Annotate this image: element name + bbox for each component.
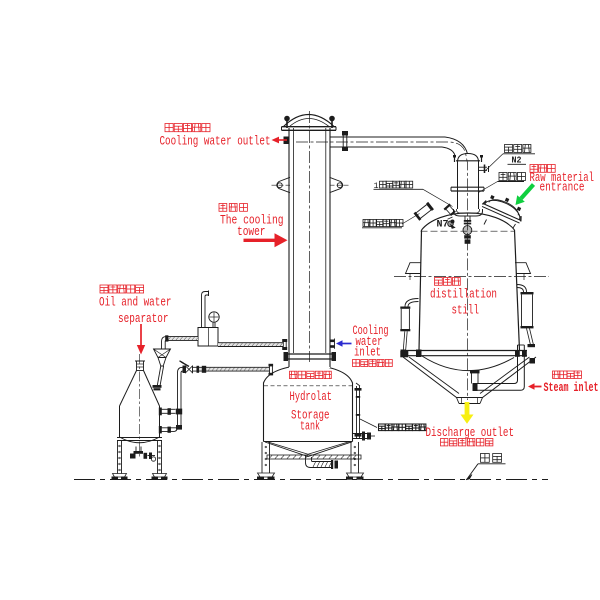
- svg-text:Cooling water outlet: Cooling water outlet: [160, 135, 271, 149]
- svg-text:separator: separator: [118, 312, 169, 326]
- svg-text:entrance: entrance: [540, 180, 585, 194]
- svg-text:Discharge outlet: Discharge outlet: [426, 425, 515, 440]
- svg-text:still: still: [452, 304, 480, 318]
- svg-text:Hydrolat: Hydrolat: [290, 390, 333, 404]
- svg-text:Steam inlet: Steam inlet: [544, 380, 599, 395]
- svg-text:tower: tower: [237, 225, 266, 239]
- svg-text:Oil and water: Oil and water: [99, 296, 172, 310]
- svg-text:N7: N7: [437, 220, 449, 231]
- svg-text:tank: tank: [300, 419, 320, 433]
- svg-text:distillation: distillation: [430, 288, 497, 302]
- svg-text:inlet: inlet: [354, 345, 381, 359]
